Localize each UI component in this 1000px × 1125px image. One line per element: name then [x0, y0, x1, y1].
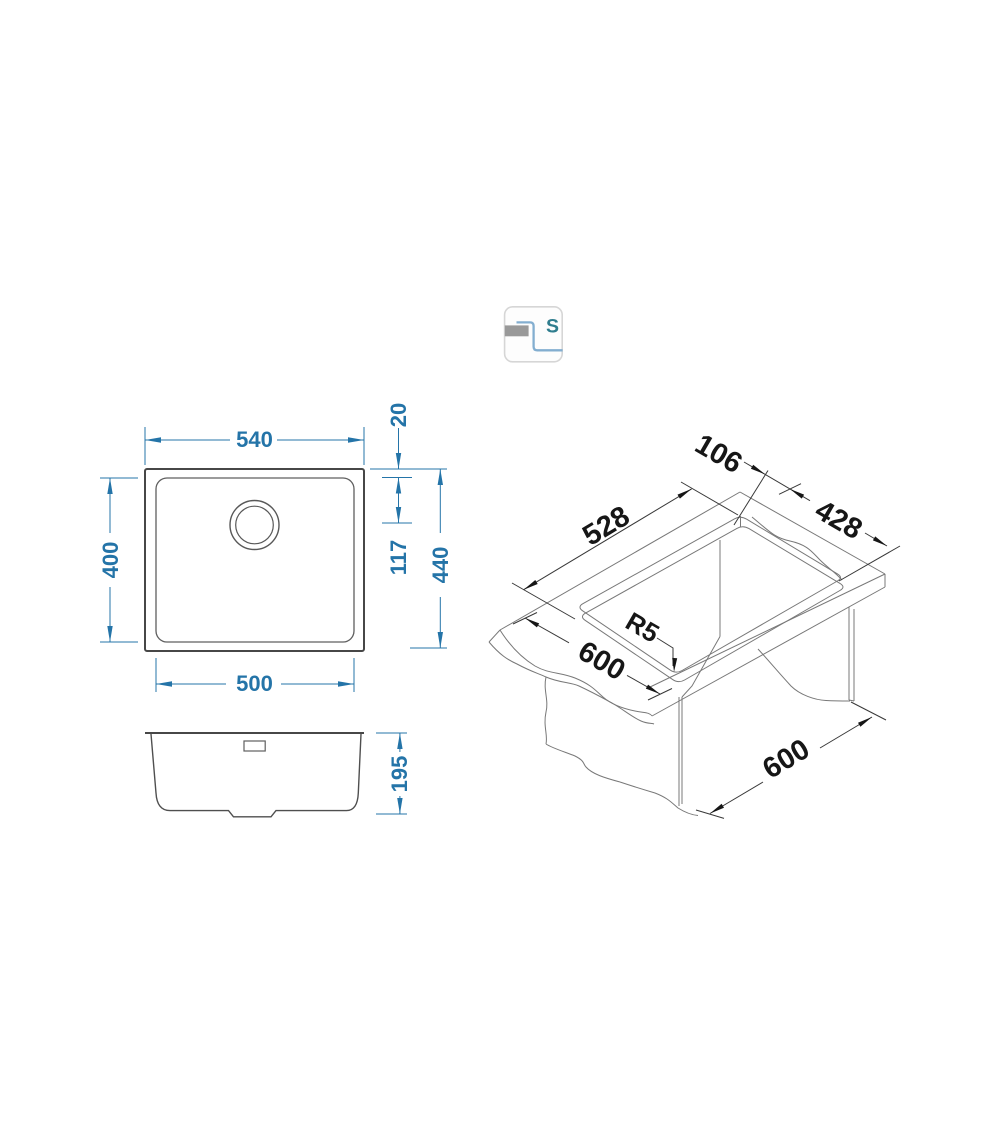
- svg-text:400: 400: [98, 542, 123, 579]
- svg-text:117: 117: [386, 540, 411, 576]
- svg-text:S: S: [546, 316, 559, 338]
- svg-text:20: 20: [386, 403, 411, 427]
- svg-text:500: 500: [236, 671, 273, 696]
- svg-text:540: 540: [236, 427, 273, 452]
- svg-text:195: 195: [387, 756, 412, 793]
- svg-text:440: 440: [428, 547, 453, 584]
